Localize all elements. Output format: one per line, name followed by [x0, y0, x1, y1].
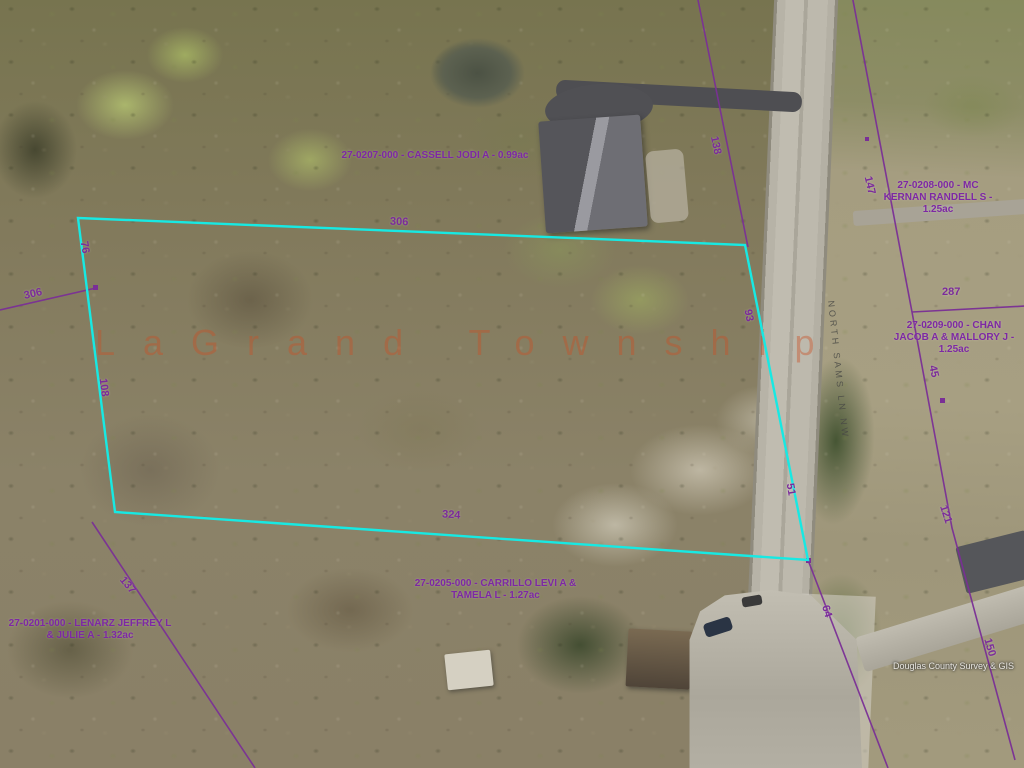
parcel-lines-overlay [0, 0, 1024, 768]
dim-right-lower: 51 [784, 483, 797, 497]
boundary-road-north [697, 0, 748, 247]
parcel-label-mckernan: 27-0208-000 - MC KERNAN RANDELL S - 1.25… [882, 180, 994, 216]
boundary-east-north [852, 0, 912, 312]
parcel-label-carrillo: 27-0205-000 - CARRILLO LEVI A & TAMELA L… [398, 578, 593, 602]
dim-right-upper: 93 [742, 308, 755, 322]
dim-bottom: 324 [442, 509, 461, 521]
parcel-label-cassell: 27-0207-000 - CASSELL JODI A - 0.99ac [340, 150, 530, 162]
dim-top: 306 [390, 217, 409, 229]
attribution: Douglas County Survey & GIS [893, 661, 1014, 671]
parcel-label-lenarz: 27-0201-000 - LENARZ JEFFREY L & JULIE A… [4, 618, 176, 642]
boundary-west [0, 288, 96, 310]
dim-east-width: 287 [942, 287, 960, 298]
dim-left-lower: 108 [97, 378, 110, 398]
boundary-southwest [92, 522, 255, 768]
dim-road-seg-north: 138 [708, 135, 723, 155]
dim-east-seg-mid: 45 [926, 364, 939, 378]
boundary-east-width [912, 306, 1024, 312]
boundary-south [808, 560, 888, 768]
map-canvas[interactable]: LaGrand Township NORTH SAMS LN NW 27-020… [0, 0, 1024, 768]
dim-left-upper: 76 [78, 241, 91, 255]
parcel-label-chan: 27-0209-000 - CHAN JACOB A & MALLORY J -… [893, 320, 1015, 356]
vertex-markers [93, 137, 945, 563]
boundary-east-south [912, 312, 1015, 760]
